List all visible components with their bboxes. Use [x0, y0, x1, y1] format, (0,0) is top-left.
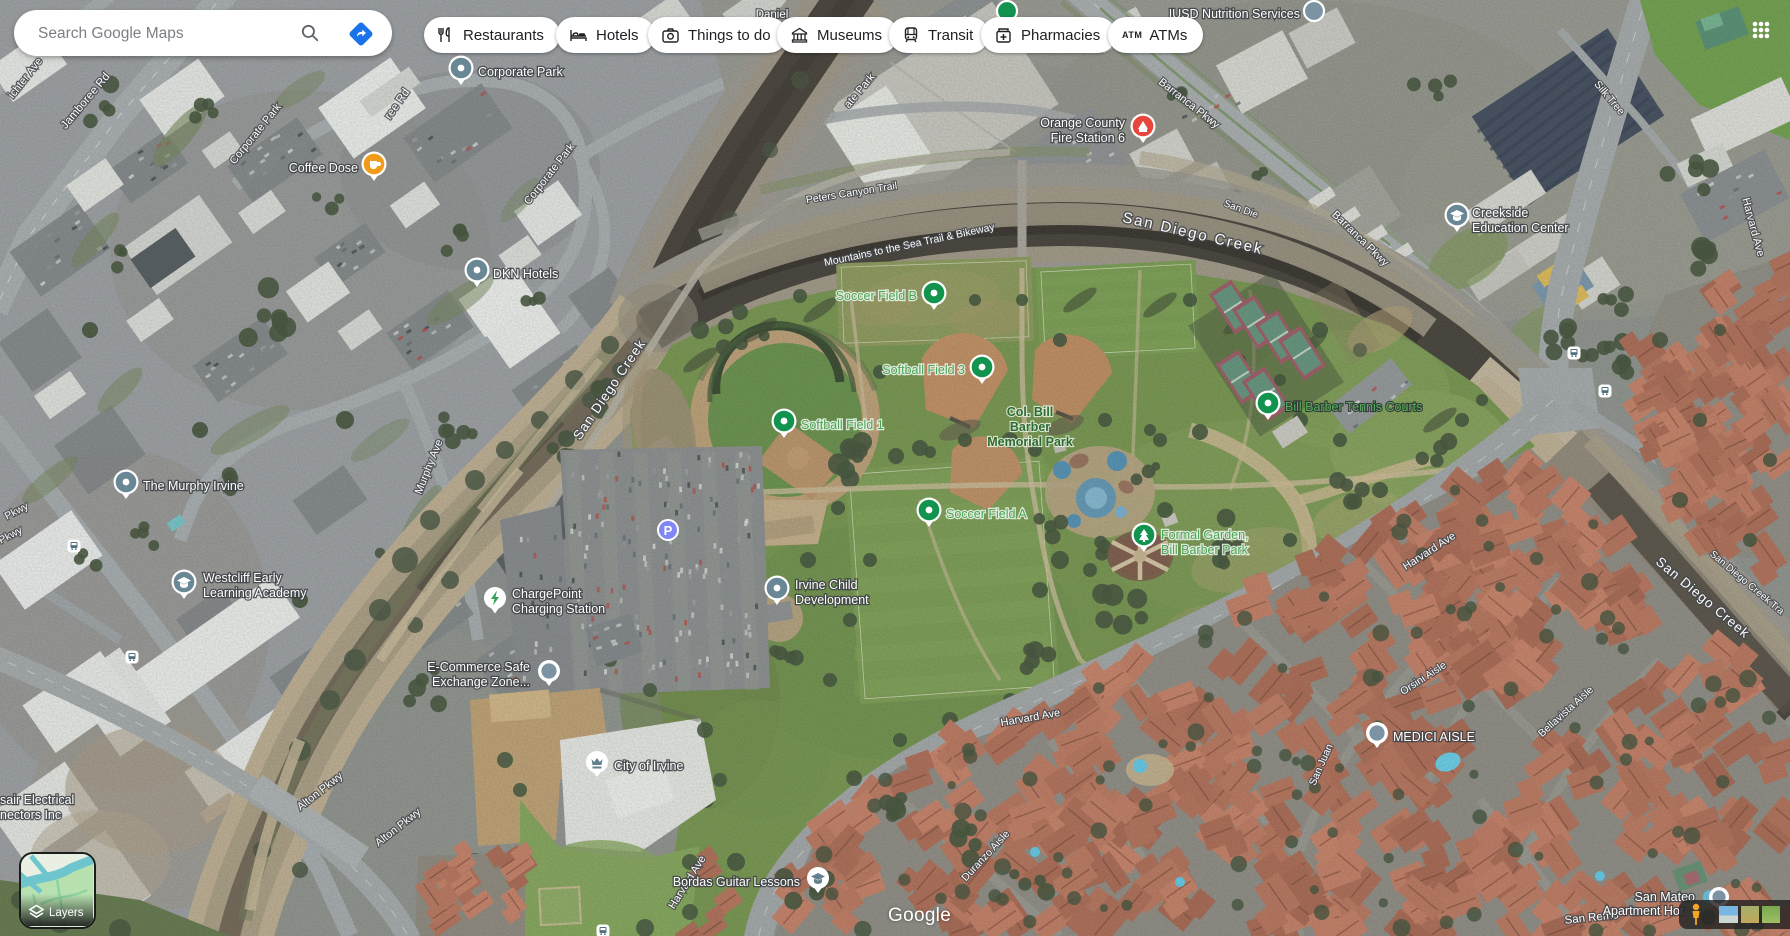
svg-text:Corporate Park: Corporate Park	[478, 65, 564, 79]
svg-text:DKN Hotels: DKN Hotels	[493, 267, 558, 281]
svg-text:ChargePoint: ChargePoint	[512, 587, 582, 601]
svg-text:Coffee Dose: Coffee Dose	[289, 161, 358, 175]
svg-text:E-Commerce Safe: E-Commerce Safe	[427, 660, 530, 674]
svg-text:Col. Bill: Col. Bill	[1007, 405, 1054, 419]
svg-text:Irvine Child: Irvine Child	[795, 578, 858, 592]
svg-text:Softball Field 3: Softball Field 3	[882, 363, 965, 377]
svg-text:Soccer Field B: Soccer Field B	[836, 289, 917, 303]
svg-text:The Murphy Irvine: The Murphy Irvine	[143, 479, 244, 493]
svg-text:sair Electrical: sair Electrical	[0, 793, 74, 807]
svg-text:Bill Barber Park: Bill Barber Park	[1161, 543, 1249, 557]
svg-text:Fire Station 6: Fire Station 6	[1051, 131, 1125, 145]
svg-text:City of Irvine: City of Irvine	[614, 759, 684, 773]
svg-text:Apartment Hor: Apartment Hor	[1603, 904, 1684, 918]
svg-text:Softball Field 1: Softball Field 1	[801, 418, 884, 432]
svg-text:Development: Development	[795, 593, 869, 607]
svg-text:Barber: Barber	[1010, 420, 1050, 434]
svg-text:Education Center: Education Center	[1472, 221, 1569, 235]
svg-text:Orange County: Orange County	[1040, 116, 1126, 130]
svg-text:Westcliff Early: Westcliff Early	[203, 571, 282, 585]
svg-text:Soccer Field A: Soccer Field A	[946, 507, 1027, 521]
svg-text:Bordas Guitar Lessons: Bordas Guitar Lessons	[673, 875, 800, 889]
svg-text:Exchange Zone...: Exchange Zone...	[432, 675, 530, 689]
svg-text:Memorial Park: Memorial Park	[987, 435, 1073, 449]
svg-text:Formal Garden,: Formal Garden,	[1161, 528, 1249, 542]
svg-text:Bill Barber Tennis Courts: Bill Barber Tennis Courts	[1285, 400, 1422, 414]
svg-text:P: P	[664, 523, 673, 538]
svg-text:nectors Inc: nectors Inc	[0, 808, 61, 822]
svg-text:Charging Station: Charging Station	[512, 602, 605, 616]
svg-text:Learning Academy: Learning Academy	[203, 586, 307, 600]
svg-text:MEDICI AISLE: MEDICI AISLE	[1393, 730, 1475, 744]
svg-text:Creekside: Creekside	[1472, 206, 1528, 220]
